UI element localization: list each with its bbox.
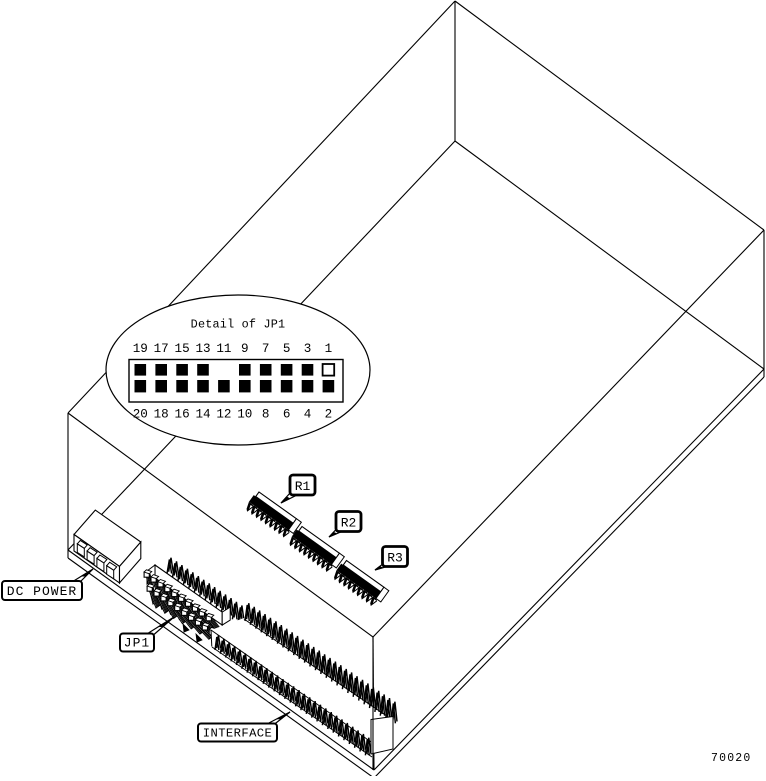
svg-text:19: 19: [133, 342, 148, 356]
svg-text:JP1: JP1: [124, 636, 150, 651]
svg-text:4: 4: [304, 408, 312, 422]
svg-text:R1: R1: [295, 479, 311, 494]
svg-text:Detail of JP1: Detail of JP1: [191, 318, 286, 332]
svg-text:3: 3: [304, 342, 312, 356]
svg-text:7: 7: [262, 342, 270, 356]
svg-text:9: 9: [241, 342, 249, 356]
svg-text:INTERFACE: INTERFACE: [203, 727, 272, 741]
svg-text:6: 6: [283, 408, 291, 422]
svg-text:5: 5: [283, 342, 291, 356]
svg-text:1: 1: [325, 342, 333, 356]
svg-text:18: 18: [154, 408, 169, 422]
svg-text:14: 14: [195, 408, 210, 422]
svg-text:10: 10: [237, 408, 252, 422]
svg-text:DC POWER: DC POWER: [7, 584, 77, 599]
svg-text:12: 12: [216, 408, 231, 422]
svg-text:2: 2: [325, 408, 333, 422]
svg-text:13: 13: [195, 342, 210, 356]
svg-text:70020: 70020: [711, 752, 752, 765]
svg-text:17: 17: [154, 342, 169, 356]
svg-text:R2: R2: [341, 516, 357, 531]
svg-text:R3: R3: [387, 551, 403, 566]
svg-text:15: 15: [175, 342, 190, 356]
svg-text:16: 16: [175, 408, 190, 422]
svg-text:11: 11: [216, 342, 231, 356]
svg-text:20: 20: [133, 408, 148, 422]
svg-text:8: 8: [262, 408, 270, 422]
